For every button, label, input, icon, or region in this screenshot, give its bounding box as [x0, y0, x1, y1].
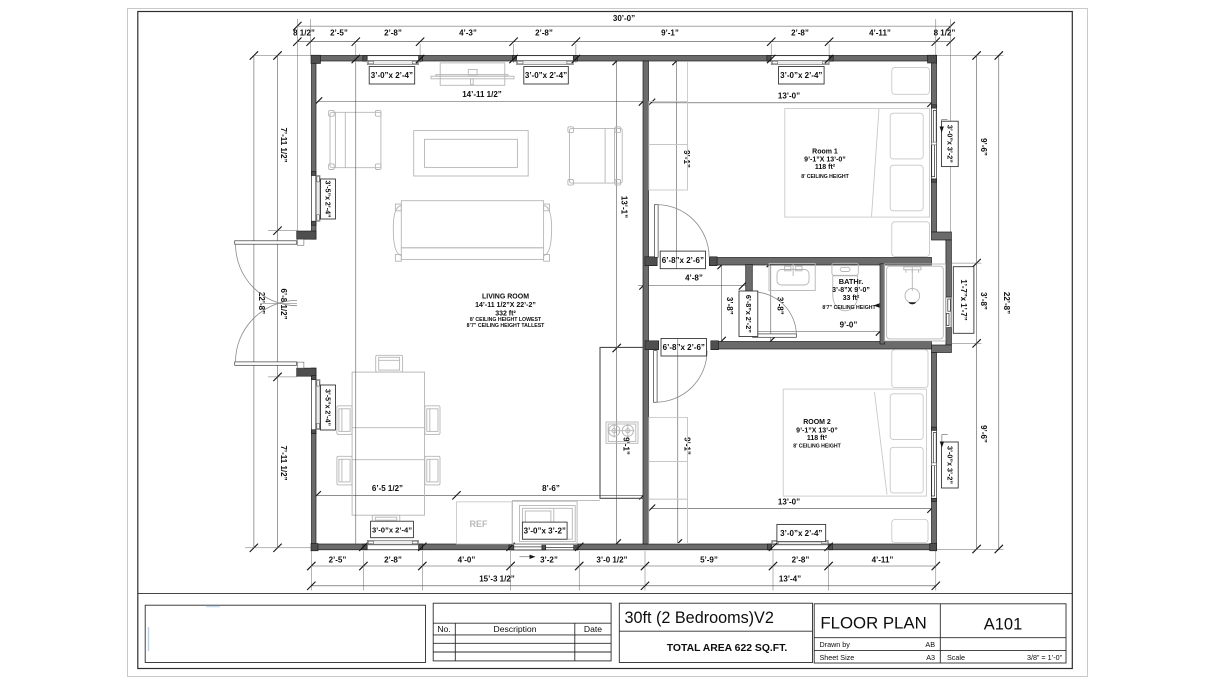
svg-text:7’-11 1/2”: 7’-11 1/2” — [279, 445, 288, 480]
svg-text:4’-8”: 4’-8” — [685, 274, 703, 283]
svg-text:No.: No. — [437, 624, 450, 634]
svg-text:13’-4”: 13’-4” — [779, 575, 801, 584]
svg-text:LIVING ROOM: LIVING ROOM — [482, 294, 529, 301]
svg-text:1’-7”x 1’-7”: 1’-7”x 1’-7” — [959, 279, 968, 320]
svg-text:BATHr.: BATHr. — [839, 277, 864, 286]
svg-text:8’7” CEILING HEIGHT TALLEST: 8’7” CEILING HEIGHT TALLEST — [467, 323, 546, 329]
svg-text:4’-3”: 4’-3” — [459, 29, 477, 38]
svg-text:2’-5”: 2’-5” — [330, 29, 348, 38]
svg-text:Scale: Scale — [947, 653, 965, 662]
svg-text:15’-3 1/2”: 15’-3 1/2” — [479, 575, 515, 584]
svg-text:3’-0”x 3’-2”: 3’-0”x 3’-2” — [945, 446, 954, 484]
svg-text:3’-5”x 2’-4”: 3’-5”x 2’-4” — [323, 181, 330, 218]
svg-text:A3: A3 — [926, 653, 935, 662]
svg-text:9’-6”: 9’-6” — [979, 138, 988, 156]
svg-text:14’-11 1/2”X 22’-2”: 14’-11 1/2”X 22’-2” — [475, 302, 536, 309]
svg-text:3’-2”: 3’-2” — [540, 556, 558, 565]
svg-text:3’-0”x 2’-4”: 3’-0”x 2’-4” — [371, 71, 413, 80]
svg-text:3’-0”x 3’-2”: 3’-0”x 3’-2” — [945, 125, 954, 163]
svg-text:5’-9”: 5’-9” — [700, 556, 718, 565]
svg-text:3’-0”x 2’-4”: 3’-0”x 2’-4” — [780, 529, 822, 538]
svg-text:3’-8”: 3’-8” — [775, 297, 784, 315]
svg-text:33 ft²: 33 ft² — [843, 295, 860, 302]
svg-text:9’-6”: 9’-6” — [979, 425, 988, 443]
svg-text:4’-11”: 4’-11” — [872, 556, 894, 565]
svg-text:8’ CEILING HEIGHT: 8’ CEILING HEIGHT — [801, 174, 849, 180]
svg-text:9’-1”: 9’-1” — [683, 437, 692, 455]
svg-text:9’-1”: 9’-1” — [661, 29, 679, 38]
svg-text:Drawn by: Drawn by — [820, 640, 851, 649]
svg-text:2’-8”: 2’-8” — [384, 29, 402, 38]
svg-text:ROOM 2: ROOM 2 — [803, 419, 831, 426]
svg-text:6’-8”x 2’-2”: 6’-8”x 2’-2” — [744, 295, 753, 333]
svg-text:13’-0”: 13’-0” — [778, 497, 800, 506]
svg-text:118 ft²: 118 ft² — [807, 435, 828, 442]
svg-text:2’-8”: 2’-8” — [384, 556, 402, 565]
svg-text:9’-1”X 13’-0”: 9’-1”X 13’-0” — [804, 157, 846, 164]
svg-text:2’-8”: 2’-8” — [791, 29, 809, 38]
svg-text:6’-8”x 2’-6”: 6’-8”x 2’-6” — [663, 343, 705, 352]
svg-text:A101: A101 — [984, 616, 1023, 634]
svg-text:3’-8”X 9’-0”: 3’-8”X 9’-0” — [832, 287, 870, 294]
svg-text:22’-8”: 22’-8” — [1002, 292, 1011, 314]
svg-text:14’-11 1/2”: 14’-11 1/2” — [462, 90, 502, 99]
svg-text:2’-8”: 2’-8” — [792, 556, 810, 565]
svg-text:6’-5 1/2”: 6’-5 1/2” — [372, 484, 403, 493]
svg-text:8’-6”: 8’-6” — [542, 484, 560, 493]
svg-text:8 1/2”: 8 1/2” — [293, 29, 315, 38]
svg-text:13’-0”: 13’-0” — [778, 92, 800, 101]
svg-text:8’7” CEILING HEIGHT: 8’7” CEILING HEIGHT — [822, 305, 876, 311]
svg-text:REF: REF — [470, 519, 489, 529]
svg-text:9’-1”X 13’-0”: 9’-1”X 13’-0” — [796, 427, 838, 434]
svg-text:9’-1”: 9’-1” — [621, 437, 630, 455]
svg-text:13’-1”: 13’-1” — [620, 196, 629, 218]
svg-text:3’-5”x 2’-4”: 3’-5”x 2’-4” — [323, 389, 330, 426]
svg-text:3’-8”: 3’-8” — [725, 297, 734, 315]
svg-text:6’-8”x 2’-6”: 6’-8”x 2’-6” — [662, 256, 704, 265]
svg-text:118 ft²: 118 ft² — [815, 164, 836, 171]
svg-text:4’-11”: 4’-11” — [869, 29, 891, 38]
svg-text:2’-5”: 2’-5” — [329, 556, 347, 565]
svg-text:8’ CEILING HEIGHT: 8’ CEILING HEIGHT — [793, 443, 841, 449]
svg-text:3/8” = 1’-0”: 3/8” = 1’-0” — [1027, 653, 1063, 662]
svg-text:TOTAL AREA 622 SQ.FT.: TOTAL AREA 622 SQ.FT. — [667, 643, 788, 654]
svg-text:3’-0 1/2”: 3’-0 1/2” — [596, 556, 627, 565]
svg-text:4’-0”: 4’-0” — [458, 556, 476, 565]
svg-text:7’-11 1/2”: 7’-11 1/2” — [279, 127, 288, 162]
svg-text:3’-0”x 3’-2”: 3’-0”x 3’-2” — [524, 527, 566, 536]
svg-text:3’-0”x 2’-4”: 3’-0”x 2’-4” — [525, 71, 567, 80]
svg-text:3’-8”: 3’-8” — [979, 292, 988, 310]
svg-text:3’-0”x 2’-4”: 3’-0”x 2’-4” — [780, 71, 822, 80]
svg-text:22’-8”: 22’-8” — [257, 292, 266, 314]
svg-text:2’-8”: 2’-8” — [535, 29, 553, 38]
svg-text:9’-0”: 9’-0” — [840, 321, 858, 330]
svg-text:AB: AB — [925, 640, 935, 649]
svg-text:9’-1”: 9’-1” — [682, 150, 691, 168]
svg-text:3’-0”x 2’-4”: 3’-0”x 2’-4” — [372, 525, 412, 534]
svg-text:30’-0”: 30’-0” — [613, 14, 635, 23]
svg-text:FLOOR PLAN: FLOOR PLAN — [820, 614, 926, 633]
svg-text:8 1/2”: 8 1/2” — [934, 29, 956, 38]
svg-text:Sheet Size: Sheet Size — [820, 653, 855, 662]
svg-text:Room 1: Room 1 — [812, 149, 838, 156]
svg-text:Date: Date — [584, 624, 602, 634]
svg-text:Description: Description — [494, 624, 537, 634]
svg-text:30ft (2 Bedrooms)V2: 30ft (2 Bedrooms)V2 — [625, 609, 774, 627]
